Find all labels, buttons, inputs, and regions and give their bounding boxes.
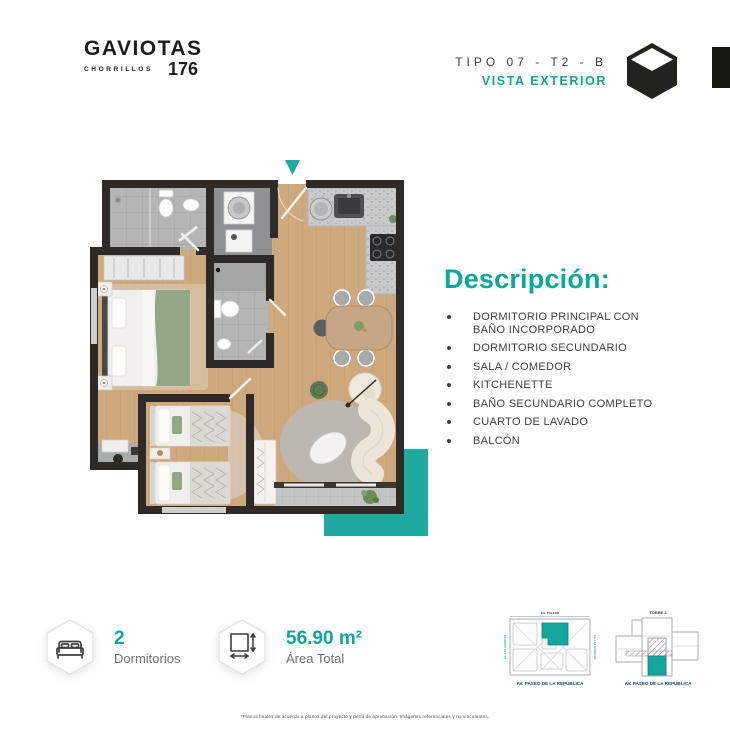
- stat-value: 2: [114, 629, 180, 649]
- keyplan-tower-bottom-street-label: AV. PASEO DE LA REPÚBLICA: [625, 680, 693, 686]
- keyplan-tower: TORRE 2 AV. PASEO DE LA REPÚBLICA: [606, 606, 710, 694]
- hexagon-badge: [46, 619, 94, 675]
- cube-icon: [626, 42, 678, 105]
- hexagon-badge: [218, 619, 266, 675]
- keyplan-site-left-street-label: CA. LAS GAVIOTAS: [503, 635, 507, 660]
- brand-number: 176: [168, 62, 198, 76]
- stat-label: Área Total: [286, 651, 362, 666]
- stat-value: 56.90 m²: [286, 629, 362, 649]
- triangle-down-icon: [285, 160, 300, 175]
- description-item: SALA / COMEDOR: [444, 361, 662, 374]
- brand-logo: GAVIOTAS CHORRILLOS 176: [84, 37, 202, 76]
- laundry-room: [224, 192, 254, 252]
- description-item: BALCÓN: [444, 435, 662, 448]
- description-item: DORMITORIO PRINCIPAL CON BAÑO INCORPORAD…: [444, 311, 662, 336]
- view-label: VISTA EXTERIOR: [420, 74, 607, 88]
- stat-label: Dormitorios: [114, 651, 180, 666]
- disclaimer-text: *Planos finales de acuerdo a planos del …: [0, 714, 730, 719]
- description-item: DORMITORIO SECUNDARIO: [444, 342, 662, 355]
- brand-district: CHORRILLOS: [84, 66, 153, 76]
- description-title: Descripción:: [444, 264, 696, 295]
- bathroom-principal-floor: [110, 188, 206, 250]
- hall-closet: [254, 440, 276, 504]
- description-item: BAÑO SECUNDARIO COMPLETO: [444, 398, 662, 411]
- keyplan-site-top-street-label: CA. TOLEDO: [541, 611, 560, 615]
- location-keyplans: CA. TOLEDO CA. LAS GAVIOTAS CA. LAS GAVI…: [498, 606, 710, 694]
- keyplan-tower-highlighted-unit: [648, 656, 666, 675]
- keyplan-tower-title: TORRE 2: [649, 610, 667, 615]
- unit-type-label: TIPO 07 - T2 - B: [455, 55, 607, 69]
- description-panel: Descripción: DORMITORIO PRINCIPAL CON BA…: [444, 264, 696, 453]
- description-item: KITCHENETTE: [444, 379, 662, 392]
- floor-plan: [78, 148, 448, 568]
- black-edge-bar: [712, 47, 730, 88]
- unit-type-block: TIPO 07 - T2 - B VISTA EXTERIOR: [420, 53, 607, 88]
- keyplan-site-right-street-label: CA. LAS GAVIOTAS: [593, 635, 597, 660]
- keyplan-site: CA. TOLEDO CA. LAS GAVIOTAS CA. LAS GAVI…: [498, 606, 602, 694]
- brand-name: GAVIOTAS: [84, 37, 202, 61]
- stat-card-area: 56.90 m² Área Total: [218, 619, 362, 675]
- description-item: CUARTO DE LAVADO: [444, 416, 662, 429]
- keyplan-site-bottom-street-label: AV. PASEO DE LA REPÚBLICA: [517, 680, 585, 686]
- stat-card-bedrooms: 2 Dormitorios: [46, 619, 180, 675]
- description-list: DORMITORIO PRINCIPAL CON BAÑO INCORPORAD…: [444, 311, 696, 447]
- balcony-floor: [274, 488, 396, 507]
